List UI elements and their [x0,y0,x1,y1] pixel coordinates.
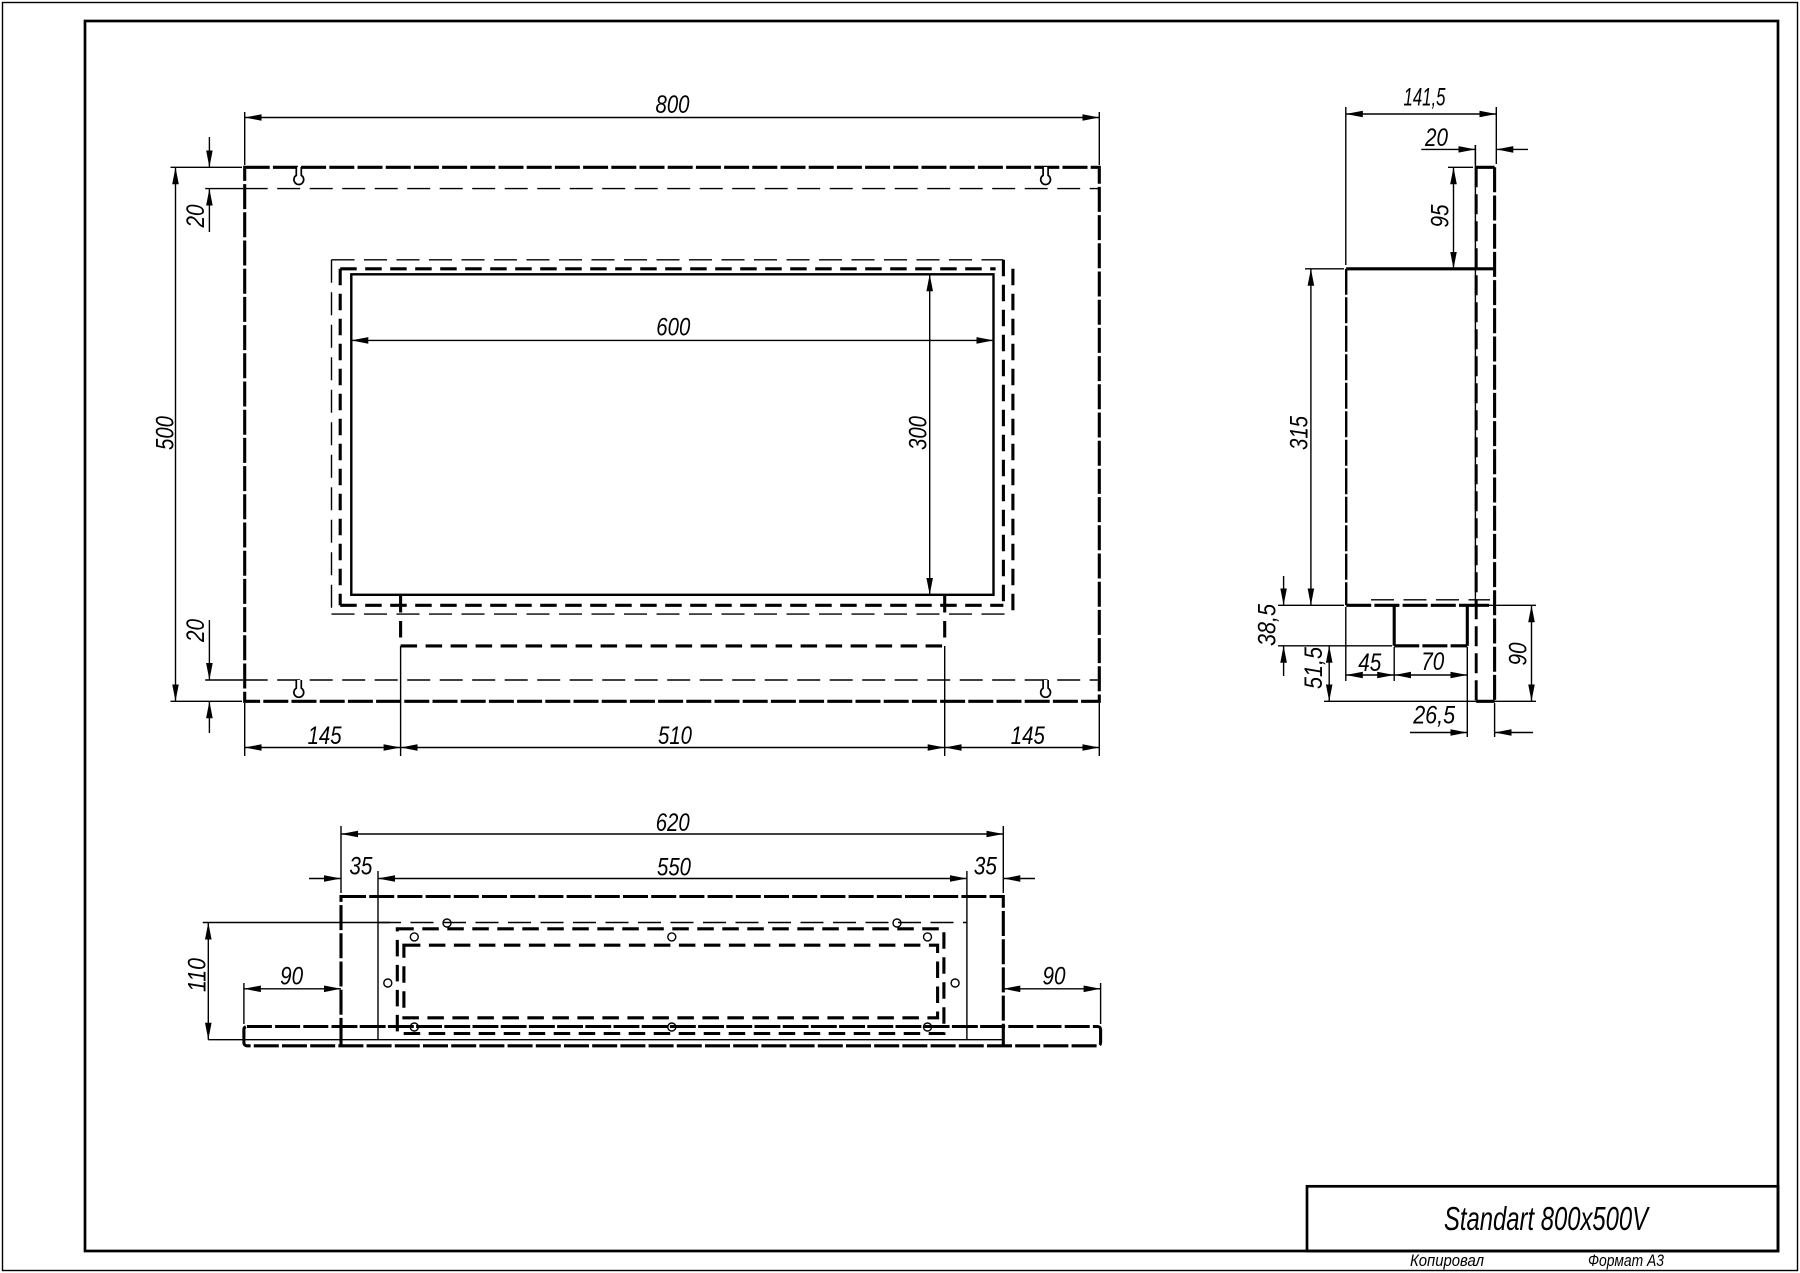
svg-text:500: 500 [151,416,179,450]
svg-text:20: 20 [182,204,210,228]
svg-text:90: 90 [1043,962,1066,990]
svg-text:Копировал: Копировал [1410,1251,1484,1270]
svg-text:510: 510 [658,722,692,750]
svg-text:90: 90 [280,962,303,990]
svg-text:145: 145 [308,722,342,750]
svg-text:Standart 800x500V: Standart 800x500V [1444,1200,1650,1237]
svg-text:300: 300 [905,416,933,450]
svg-text:600: 600 [656,314,690,342]
svg-text:95: 95 [1427,204,1455,227]
svg-text:26,5: 26,5 [1412,702,1455,730]
svg-text:38,5: 38,5 [1254,604,1282,646]
svg-text:35: 35 [349,853,372,881]
svg-text:51,5: 51,5 [1300,647,1328,689]
svg-text:315: 315 [1286,416,1314,450]
svg-text:35: 35 [974,853,997,881]
svg-text:145: 145 [1011,722,1045,750]
svg-text:110: 110 [184,958,212,992]
svg-text:141,5: 141,5 [1404,84,1446,112]
svg-text:800: 800 [656,91,690,119]
svg-text:20: 20 [182,619,210,643]
svg-text:550: 550 [657,854,691,882]
svg-text:45: 45 [1358,649,1381,677]
svg-text:90: 90 [1505,642,1533,665]
svg-text:620: 620 [656,809,690,837]
svg-text:70: 70 [1421,648,1444,676]
svg-text:Формат А3: Формат А3 [1588,1251,1664,1270]
svg-text:20: 20 [1424,124,1448,152]
